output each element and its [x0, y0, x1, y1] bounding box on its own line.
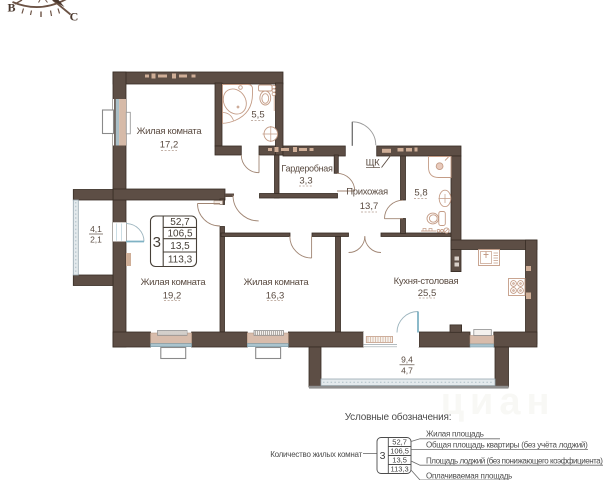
svg-text:Площадь лоджий (без понижающег: Площадь лоджий (без понижающего коэффици…	[426, 457, 603, 466]
svg-text:52,7: 52,7	[170, 217, 190, 228]
svg-text:Жилая комната: Жилая комната	[137, 126, 203, 137]
svg-text:9,4: 9,4	[401, 355, 413, 365]
svg-text:С: С	[70, 10, 79, 24]
svg-text:16,3: 16,3	[266, 291, 285, 302]
svg-text:4,1: 4,1	[90, 224, 102, 234]
svg-text:17,2: 17,2	[160, 140, 179, 151]
svg-text:В: В	[7, 1, 15, 15]
svg-text:3: 3	[380, 450, 386, 462]
svg-text:113,3: 113,3	[168, 255, 193, 266]
svg-text:Гардеробная: Гардеробная	[281, 164, 333, 174]
svg-text:5,5: 5,5	[251, 110, 264, 121]
svg-text:Жилая площадь: Жилая площадь	[426, 430, 484, 439]
svg-text:Условные обозначения:: Условные обозначения:	[345, 411, 452, 423]
svg-text:52,7: 52,7	[392, 438, 407, 447]
svg-text:2,1: 2,1	[90, 235, 102, 245]
svg-text:25,5: 25,5	[418, 288, 437, 299]
svg-text:13,7: 13,7	[360, 201, 379, 212]
svg-text:106,5: 106,5	[390, 447, 409, 456]
svg-text:106,5: 106,5	[167, 228, 192, 239]
svg-text:113,3: 113,3	[390, 465, 408, 474]
svg-text:Жилая комната: Жилая комната	[141, 277, 207, 288]
svg-text:Жилая комната: Жилая комната	[244, 277, 310, 288]
svg-text:Оплачиваемая площадь: Оплачиваемая площадь	[426, 472, 512, 480]
svg-text:5,8: 5,8	[414, 188, 427, 199]
svg-text:3: 3	[153, 234, 161, 251]
svg-text:19,2: 19,2	[163, 291, 182, 302]
svg-text:13,5: 13,5	[170, 241, 190, 252]
svg-text:Прихожая: Прихожая	[346, 187, 388, 198]
svg-text:Общая площадь квартиры (без уч: Общая площадь квартиры (без учёта лоджий…	[426, 441, 588, 450]
svg-text:Количество жилых комнат: Количество жилых комнат	[270, 450, 362, 459]
svg-text:13,5: 13,5	[392, 456, 407, 465]
svg-text:Кухня-столовая: Кухня-столовая	[394, 276, 459, 287]
svg-text:3,3: 3,3	[299, 176, 312, 187]
svg-text:4,7: 4,7	[401, 366, 413, 376]
svg-text:ЩК: ЩК	[366, 158, 381, 169]
